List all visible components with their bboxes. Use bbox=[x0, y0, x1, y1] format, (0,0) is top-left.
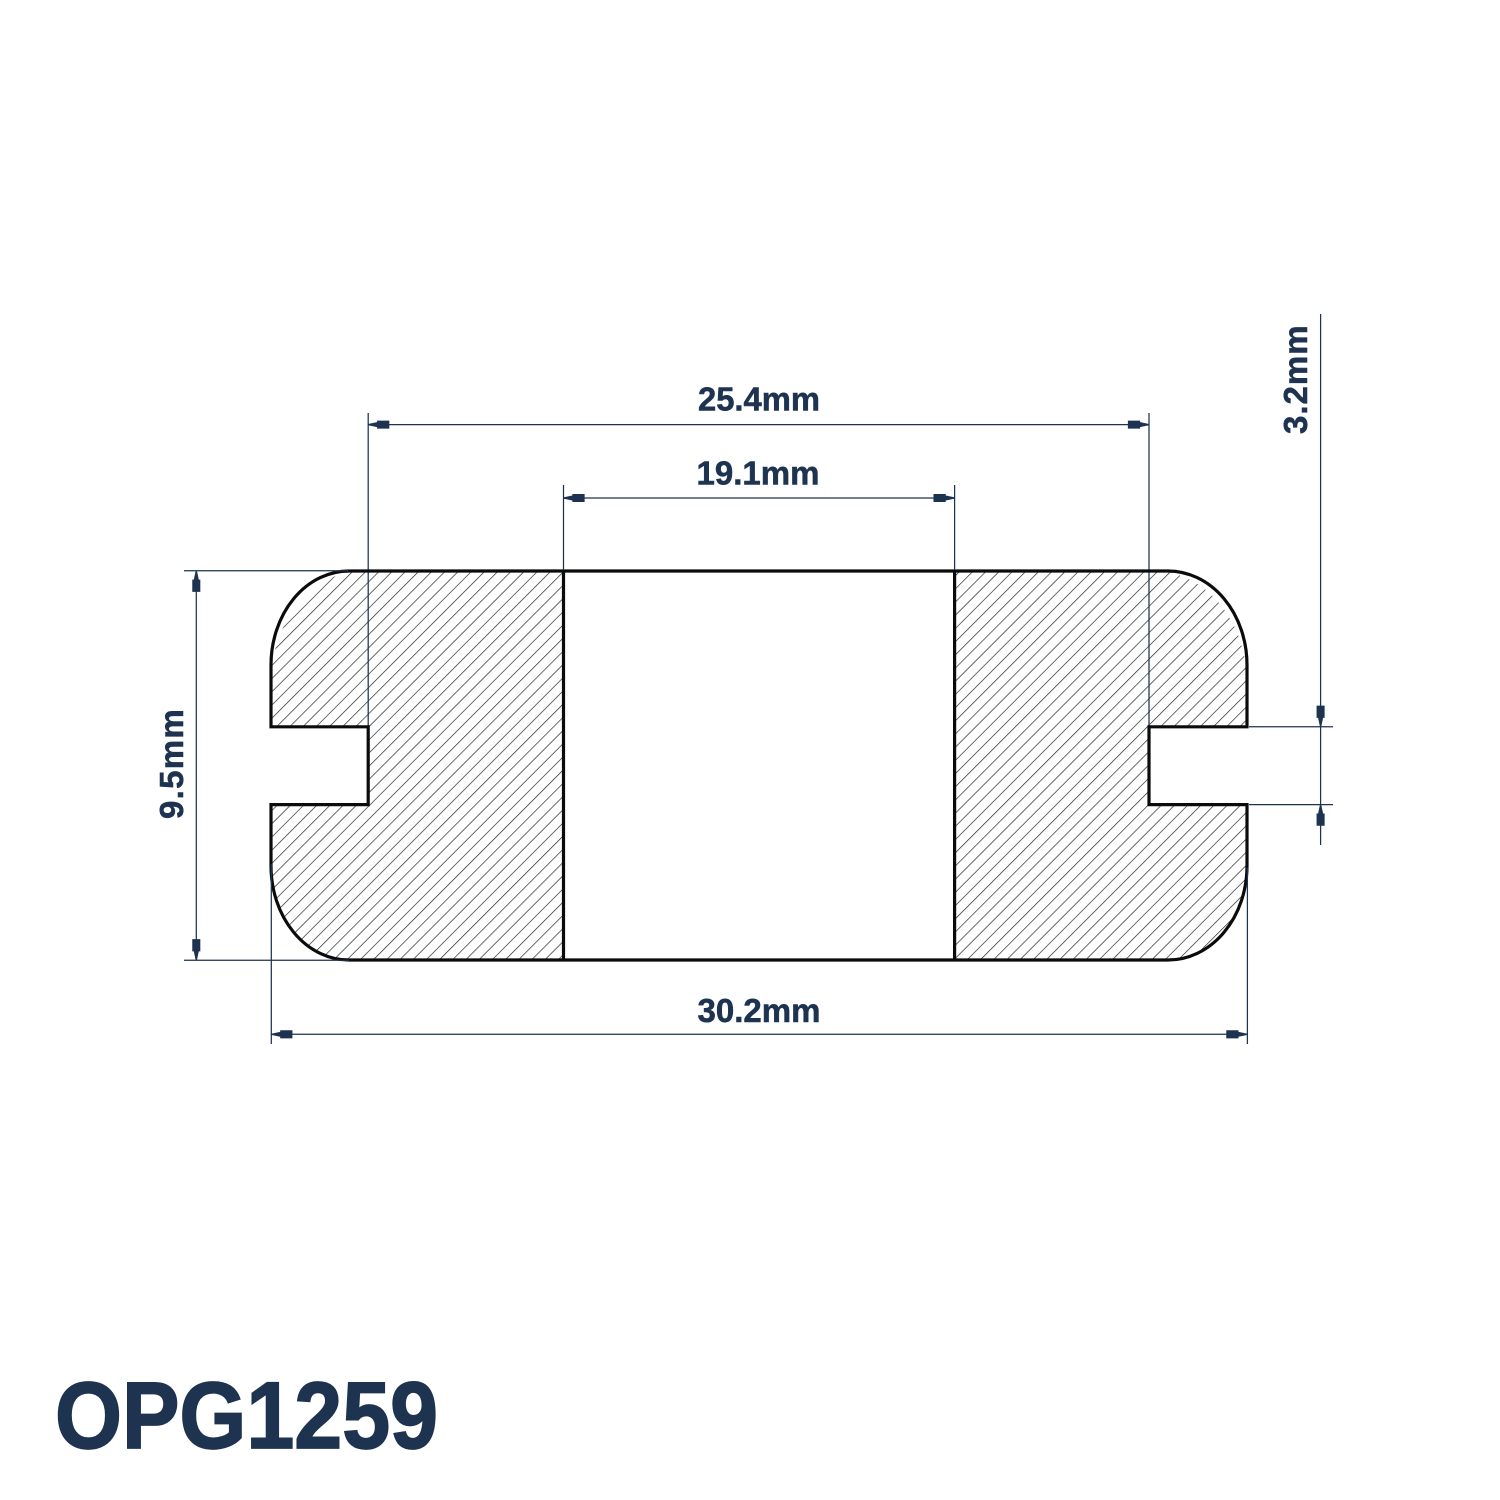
svg-text:19.1mm: 19.1mm bbox=[697, 455, 820, 492]
svg-text:9.5mm: 9.5mm bbox=[153, 708, 190, 819]
svg-text:3.2mm: 3.2mm bbox=[1277, 324, 1314, 434]
svg-text:30.2mm: 30.2mm bbox=[698, 992, 821, 1029]
svg-text:25.4mm: 25.4mm bbox=[698, 381, 820, 418]
svg-text:OPG1259: OPG1259 bbox=[55, 1363, 438, 1469]
